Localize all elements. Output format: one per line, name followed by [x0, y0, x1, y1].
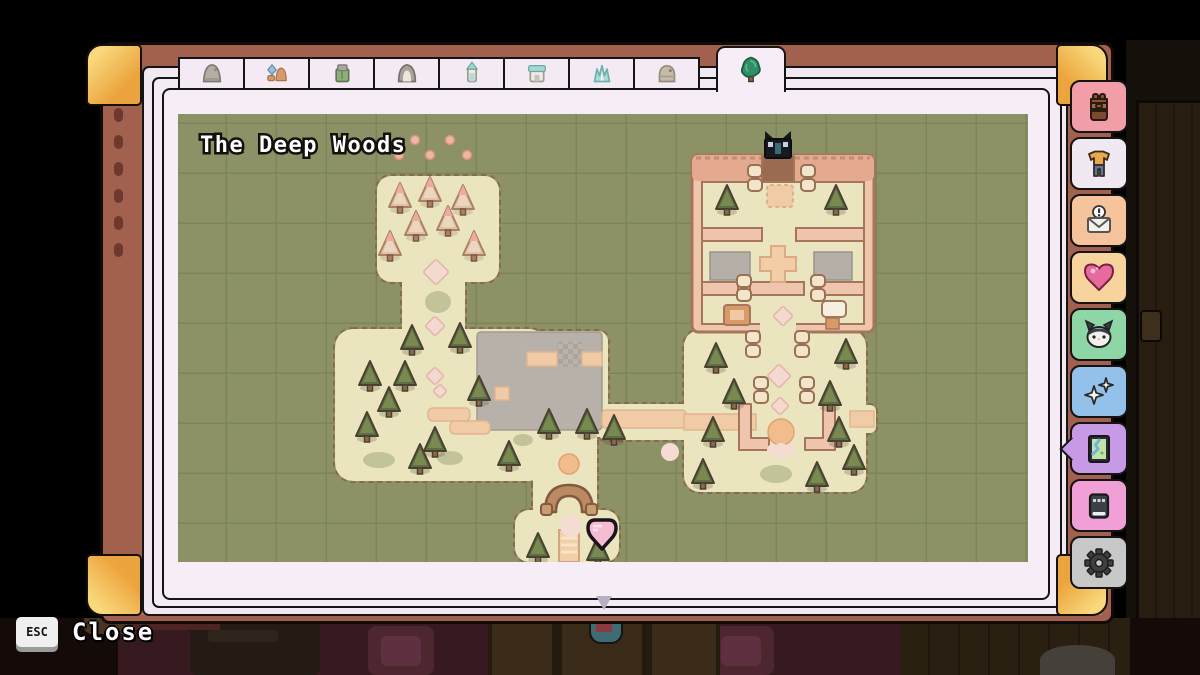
grass-patch: [513, 434, 533, 446]
mail-icon: [1081, 203, 1117, 239]
dome-icon: [652, 59, 682, 89]
tab-cave-shrine[interactable]: [373, 57, 440, 90]
world-map[interactable]: The Deep Woods: [178, 114, 1028, 562]
grass-patch: [760, 465, 792, 483]
pink-dot: [446, 136, 455, 145]
orange-spot: [768, 419, 794, 445]
spine-stitch: [114, 162, 123, 176]
spine-stitch: [114, 243, 123, 257]
journal-sidebar: [1070, 80, 1128, 593]
map-icon: [1081, 431, 1117, 467]
close-hint: ESC Close: [16, 617, 154, 647]
spine-stitch: [114, 216, 123, 230]
pink-dot: [463, 151, 472, 160]
cat-icon: [1081, 317, 1117, 353]
spine-stitch: [114, 108, 123, 122]
arch-shrine-icon: [392, 59, 422, 89]
close-button[interactable]: Close: [72, 618, 154, 646]
mail-button[interactable]: [1070, 194, 1128, 247]
green-bush-icon: [735, 54, 767, 86]
relationships-button[interactable]: [1070, 251, 1128, 304]
tab-tower[interactable]: [438, 57, 505, 90]
tab-deep-woods[interactable]: [716, 46, 786, 92]
pink-dot: [411, 136, 420, 145]
pink-spot: [661, 443, 679, 461]
grass-patch: [363, 452, 395, 468]
door: [1136, 100, 1200, 636]
bell-tower-icon: [457, 59, 487, 89]
sparkles-icon: [1081, 374, 1117, 410]
settings-button[interactable]: [1070, 536, 1128, 589]
door-handle-icon: [1140, 310, 1162, 342]
rock: [1040, 645, 1115, 675]
cat-button[interactable]: [1070, 308, 1128, 361]
journal-page: The Deep Woods: [162, 88, 1050, 600]
game-screen: The Deep Woods ESC Close: [0, 0, 1200, 675]
map-button[interactable]: [1070, 422, 1128, 475]
pink-spot: [784, 444, 796, 456]
book-corner-icon: [86, 44, 142, 106]
clothing-icon: [1081, 146, 1117, 182]
journal-tabs: [178, 57, 700, 90]
background-door: [1126, 40, 1200, 675]
stone-mound-icon: [197, 59, 227, 89]
figures-icon: [262, 59, 292, 89]
grass-patch: [425, 291, 451, 313]
orange-spot: [559, 454, 579, 474]
green-shrine-icon: [327, 59, 357, 89]
skills-button[interactable]: [1070, 365, 1128, 418]
background-room: [0, 618, 1200, 675]
book-corner-icon: [86, 554, 142, 616]
tab-camp[interactable]: [243, 57, 310, 90]
spine-stitch: [114, 135, 123, 149]
inventory-button[interactable]: [1070, 80, 1128, 133]
page-divider: [596, 596, 612, 610]
crystals-icon: [587, 59, 617, 89]
clothing-button[interactable]: [1070, 137, 1128, 190]
backpack-icon: [1081, 89, 1117, 125]
tab-dome-shrine[interactable]: [633, 57, 700, 90]
house-icon: [522, 59, 552, 89]
cabinet: [488, 618, 720, 675]
tab-stone-shrine[interactable]: [178, 57, 245, 90]
heart-icon: [1081, 260, 1117, 296]
tab-ice-crystals[interactable]: [568, 57, 635, 90]
esc-key-icon[interactable]: ESC: [16, 617, 58, 647]
pink-spot: [560, 515, 582, 537]
tab-green-shrine[interactable]: [308, 57, 375, 90]
machine-button[interactable]: [1070, 479, 1128, 532]
spine-stitch: [114, 189, 123, 203]
map-title: The Deep Woods: [200, 133, 406, 158]
pink-dot: [426, 151, 435, 160]
device-icon: [1081, 488, 1117, 524]
gear-icon: [1081, 545, 1117, 581]
tab-house[interactable]: [503, 57, 570, 90]
wall-portrait: [368, 626, 434, 675]
